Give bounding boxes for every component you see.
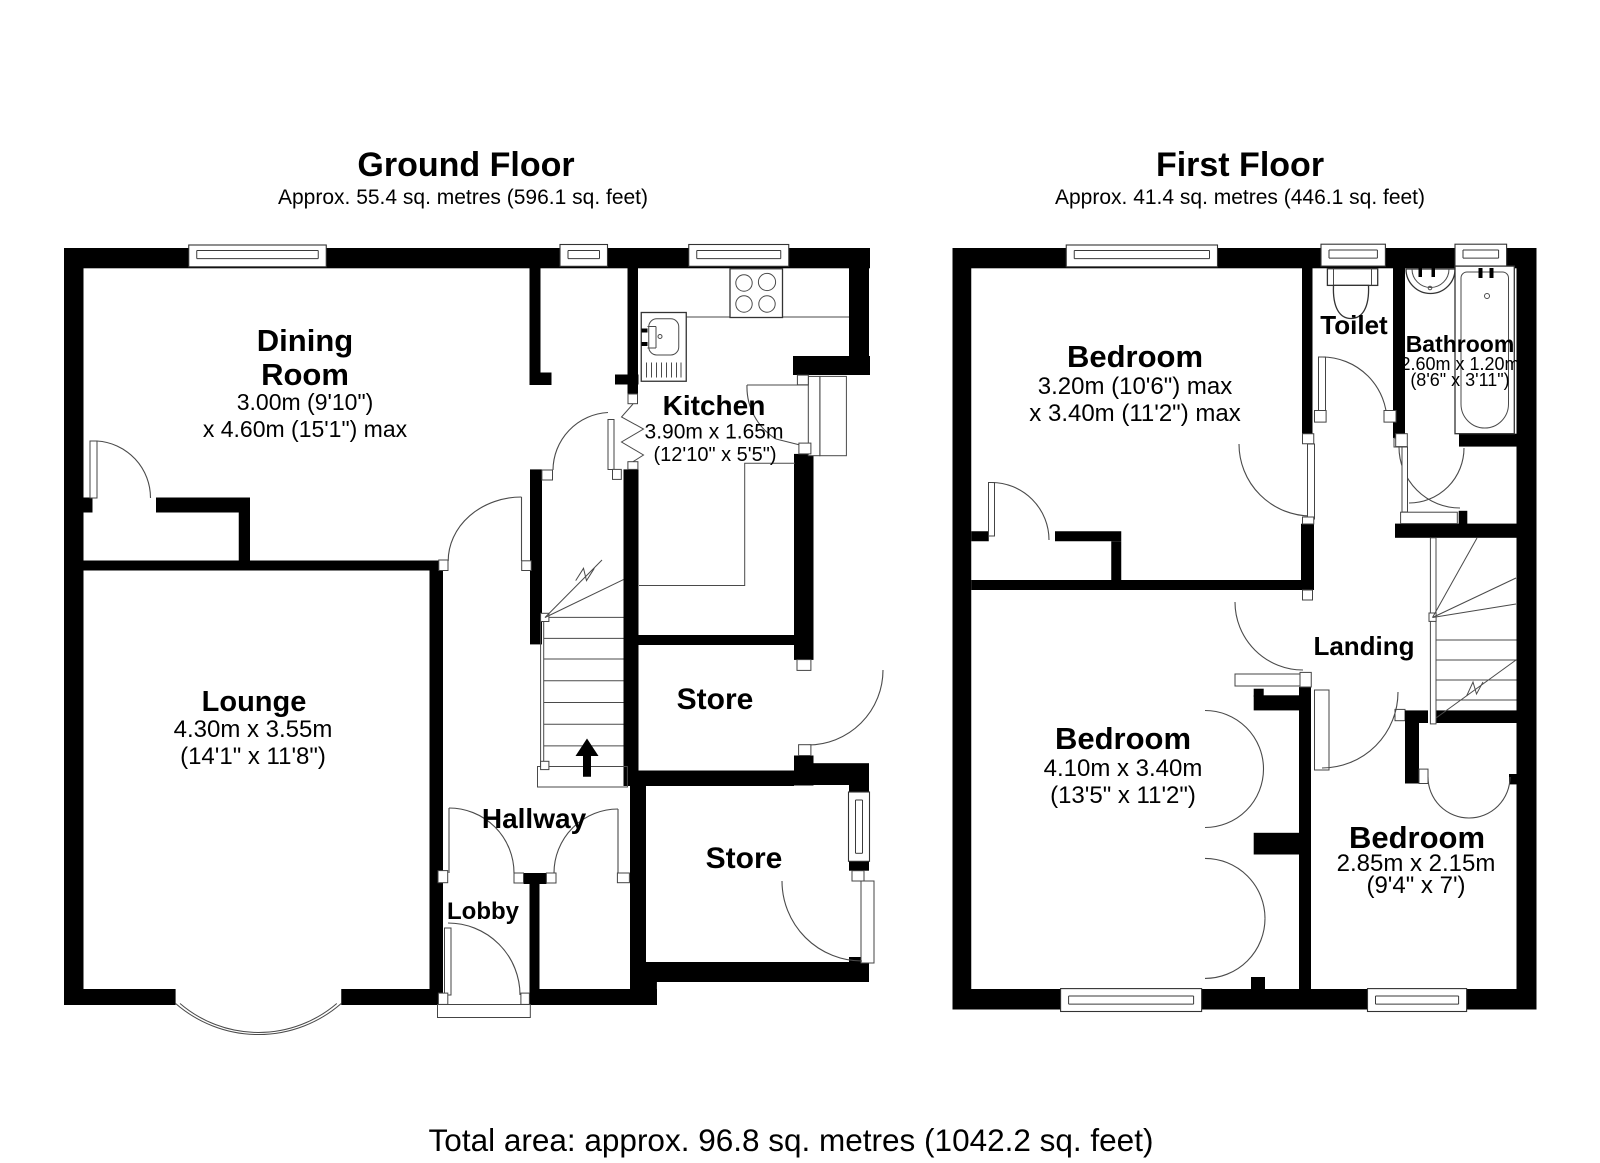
svg-text:Room: Room	[261, 357, 349, 392]
svg-text:Store: Store	[706, 842, 783, 875]
svg-text:4.10m x 3.40m: 4.10m x 3.40m	[1044, 755, 1203, 782]
svg-text:Approx. 55.4 sq. metres (596.1: Approx. 55.4 sq. metres (596.1 sq. feet)	[278, 186, 648, 209]
svg-text:3.00m (9'10"): 3.00m (9'10")	[237, 389, 374, 415]
svg-text:3.20m (10'6") max: 3.20m (10'6") max	[1038, 373, 1233, 400]
svg-text:Total area: approx. 96.8 sq. m: Total area: approx. 96.8 sq. metres (104…	[429, 1122, 1154, 1158]
svg-text:(8'6" x 3'11"): (8'6" x 3'11")	[1410, 370, 1509, 390]
svg-text:(12'10" x 5'5"): (12'10" x 5'5")	[653, 444, 776, 466]
svg-text:Bedroom: Bedroom	[1055, 721, 1191, 756]
svg-text:(9'4" x 7'): (9'4" x 7')	[1366, 872, 1465, 899]
svg-text:Store: Store	[677, 683, 754, 716]
svg-text:(14'1" x 11'8"): (14'1" x 11'8")	[180, 743, 326, 770]
svg-text:4.30m x 3.55m: 4.30m x 3.55m	[174, 716, 333, 743]
svg-text:Landing: Landing	[1313, 631, 1414, 661]
svg-text:Lounge: Lounge	[202, 686, 307, 718]
svg-text:Hallway: Hallway	[482, 803, 587, 834]
svg-text:First Floor: First Floor	[1156, 146, 1324, 184]
svg-text:3.90m x 1.65m: 3.90m x 1.65m	[645, 421, 784, 444]
svg-text:x 3.40m (11'2") max: x 3.40m (11'2") max	[1029, 400, 1240, 427]
svg-text:Ground Floor: Ground Floor	[357, 146, 574, 184]
svg-text:Lobby: Lobby	[447, 898, 520, 925]
svg-text:Bedroom: Bedroom	[1067, 339, 1203, 374]
svg-text:(13'5" x 11'2"): (13'5" x 11'2")	[1050, 782, 1196, 809]
svg-text:Toilet: Toilet	[1320, 310, 1388, 340]
svg-text:Dining: Dining	[257, 323, 353, 358]
svg-text:Kitchen: Kitchen	[663, 390, 766, 421]
svg-text:x 4.60m (15'1") max: x 4.60m (15'1") max	[203, 416, 408, 442]
svg-text:Approx. 41.4 sq. metres (446.1: Approx. 41.4 sq. metres (446.1 sq. feet)	[1055, 186, 1425, 209]
